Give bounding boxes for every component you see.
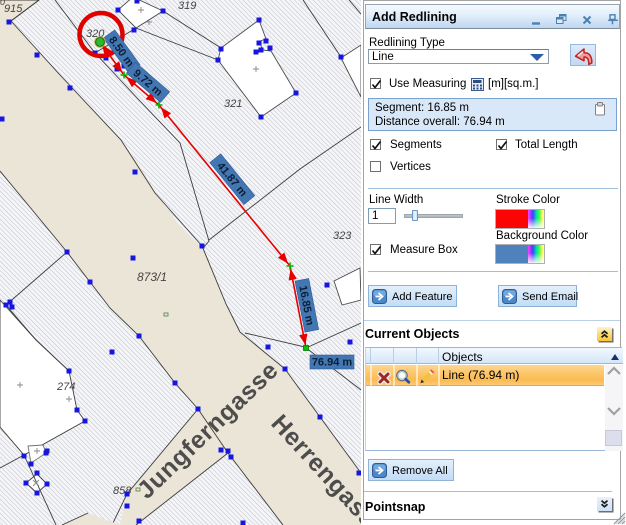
svg-text:873/1: 873/1 [137,270,167,284]
svg-text:319: 319 [178,0,196,12]
svg-text:76.94 m: 76.94 m [312,357,353,369]
svg-text:0: 0 [0,0,5,7]
svg-text:274: 274 [56,381,75,393]
svg-text:915: 915 [4,3,23,15]
svg-text:323: 323 [333,230,352,242]
svg-text:321: 321 [224,98,242,110]
